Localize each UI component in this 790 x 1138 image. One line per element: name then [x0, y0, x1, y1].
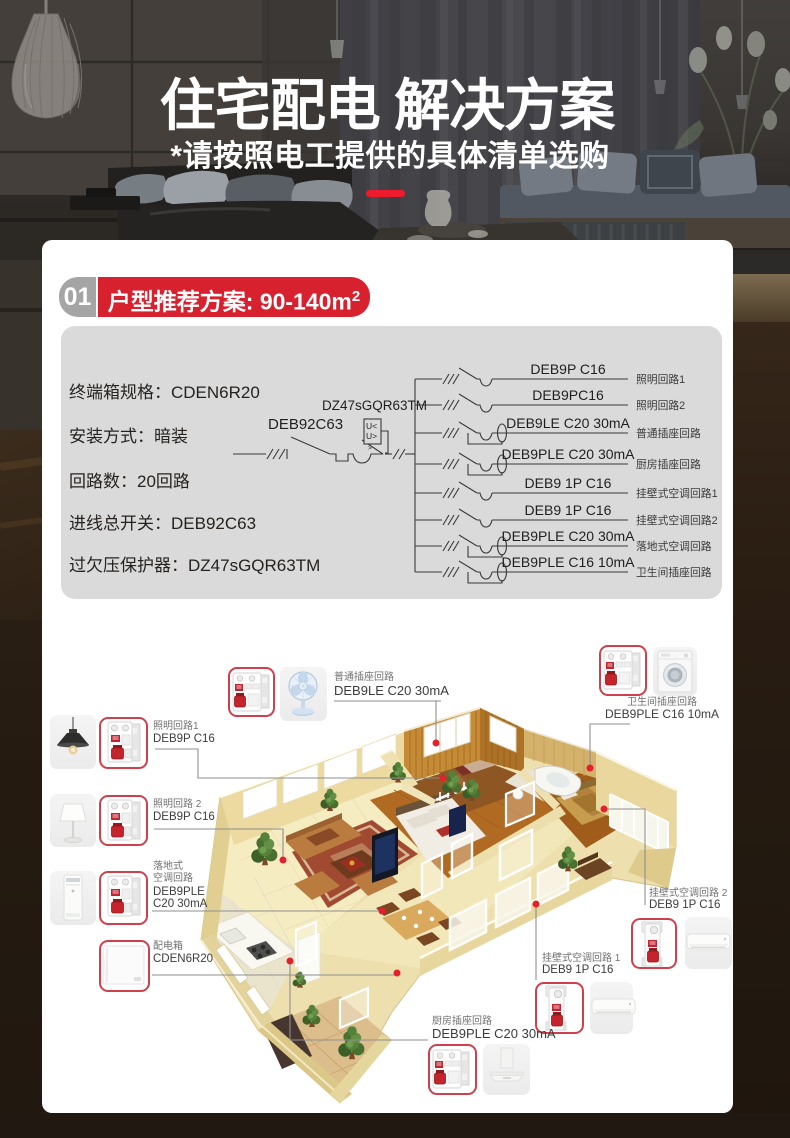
svg-text:普通插座回路: 普通插座回路: [636, 426, 701, 440]
svg-text:DEB9PLE C20 30mA: DEB9PLE C20 30mA: [501, 528, 635, 544]
svg-text:U>: U>: [366, 431, 377, 441]
svg-text:DEB9P C16: DEB9P C16: [530, 361, 605, 377]
svg-text:DEB9 1P C16: DEB9 1P C16: [525, 502, 612, 518]
svg-text:>: >: [368, 445, 372, 452]
svg-text:厨房插座回路: 厨房插座回路: [636, 457, 701, 471]
svg-text:落地式空调回路: 落地式空调回路: [636, 539, 712, 553]
svg-text:照明回路1: 照明回路1: [636, 373, 685, 386]
svg-text:DEB9LE C20 30mA: DEB9LE C20 30mA: [506, 415, 630, 431]
svg-text:DEB9PLE C16 10mA: DEB9PLE C16 10mA: [501, 554, 635, 570]
svg-text:DEB92C63: DEB92C63: [268, 416, 343, 433]
svg-text:挂壁式空调回路2: 挂壁式空调回路2: [636, 513, 718, 527]
svg-text:照明回路2: 照明回路2: [636, 399, 685, 412]
svg-text:DEB9 1P C16: DEB9 1P C16: [525, 475, 612, 491]
svg-text:DEB9PC16: DEB9PC16: [532, 387, 604, 403]
svg-text:DEB9PLE C20 30mA: DEB9PLE C20 30mA: [501, 446, 635, 462]
svg-text:卫生间插座回路: 卫生间插座回路: [636, 565, 712, 579]
svg-text:U<: U<: [366, 421, 377, 431]
svg-text:挂壁式空调回路1: 挂壁式空调回路1: [636, 486, 718, 500]
svg-text:DZ47sGQR63TM: DZ47sGQR63TM: [322, 398, 427, 413]
